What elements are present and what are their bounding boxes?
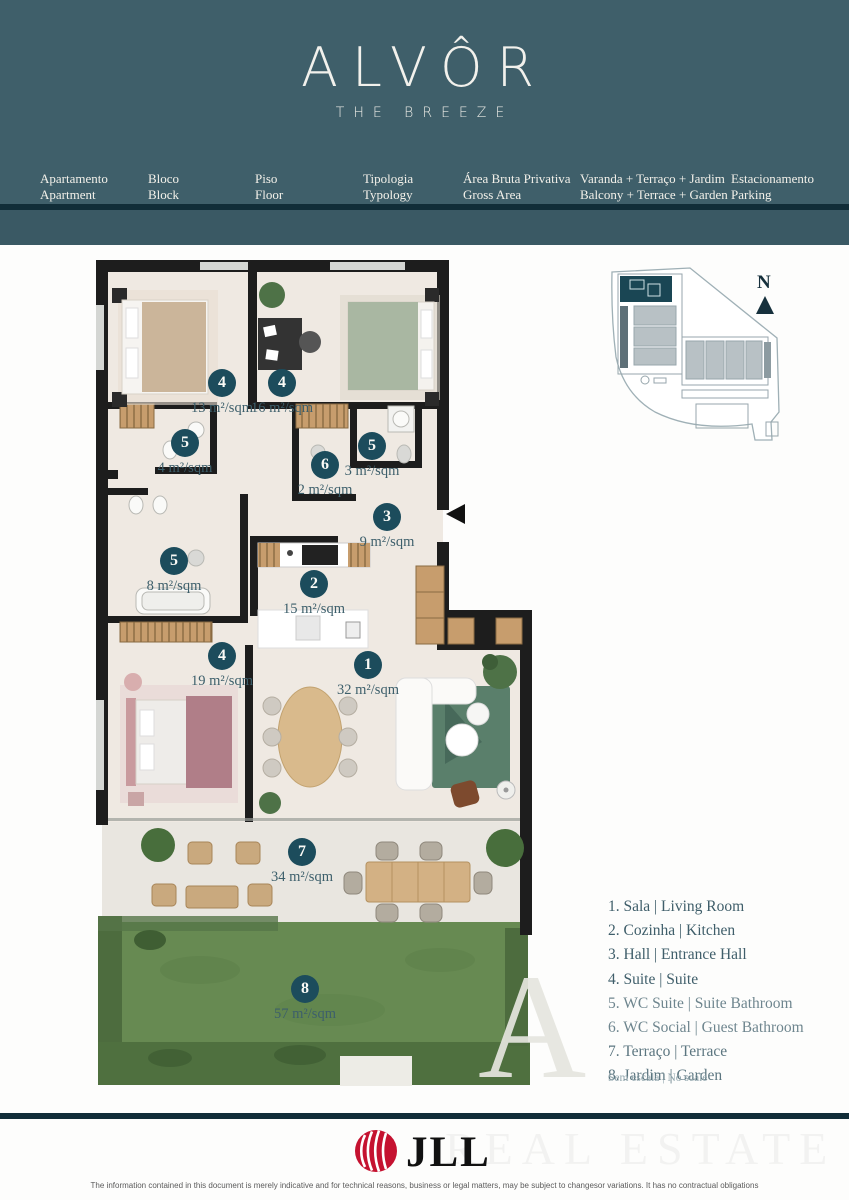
room-badge-wc-suite-a: 5 [171, 429, 199, 457]
header-col-en: Parking [731, 187, 814, 203]
brand-logo: ALVÔR [0, 36, 849, 99]
legend-item-suite: 4. Suite | Suite [608, 971, 804, 989]
room-badge-wc-suite-b: 5 [358, 432, 386, 460]
header-col-typology: Tipologia Typology [363, 171, 413, 203]
header-col-pt: Estacionamento [731, 171, 814, 187]
disclaimer-text: The information contained in this docume… [0, 1181, 849, 1190]
header-col-pt: Tipologia [363, 171, 413, 187]
room-area-wc-suite-a: 4 m²/sqm [135, 460, 235, 477]
room-area-wc-suite-b: 3 m²/sqm [322, 463, 422, 480]
room-badge-living: 1 [354, 651, 382, 679]
legend-item-wc-social: 6. WC Social | Guest Bathroom [608, 1019, 804, 1037]
room-legend: 1. Sala | Living Room 2. Cozinha | Kitch… [608, 898, 804, 1092]
brand-tagline: THE BREEZE [0, 105, 849, 121]
header-values-band [0, 210, 849, 245]
room-badge-suite-b: 4 [268, 369, 296, 397]
room-badge-suite-a: 4 [208, 369, 236, 397]
north-arrow-icon: N [756, 272, 774, 314]
legend-item-terrace: 7. Terraço | Terrace [608, 1043, 804, 1061]
header-col-block: Bloco Block [148, 171, 179, 203]
header-col-pt: Piso [255, 171, 283, 187]
room-area-suite-b: 16 m²/sqm [232, 400, 332, 417]
room-badge-wc-suite-c: 5 [160, 547, 188, 575]
suite-furniture [120, 673, 238, 806]
legend-item-hall: 3. Hall | Entrance Hall [608, 946, 804, 964]
legend-item-living: 1. Sala | Living Room [608, 898, 804, 916]
header-col-en: Typology [363, 187, 413, 203]
room-badge-hall: 3 [373, 503, 401, 531]
room-badge-kitchen: 2 [300, 570, 328, 598]
highlighted-unit [620, 276, 672, 302]
room-area-wc-suite-c: 8 m²/sqm [124, 578, 224, 595]
room-area-garden: 57 m²/sqm [255, 1006, 355, 1023]
header-col-parking: Estacionamento Parking [731, 171, 814, 203]
legend-item-kitchen: 2. Cozinha | Kitchen [608, 922, 804, 940]
header-col-pt: Varanda + Terraço + Jardim [580, 171, 728, 187]
header-col-en: Apartment [40, 187, 108, 203]
header-divider [0, 204, 849, 210]
site-map: N [600, 262, 800, 452]
room-badge-suite-c: 4 [208, 642, 236, 670]
header-col-pt: Área Bruta Privativa [463, 171, 571, 187]
header-col-en: Balcony + Terrace + Garden [580, 187, 728, 203]
header-col-en: Block [148, 187, 179, 203]
scale-note: Sem escala | No scale [608, 1072, 707, 1084]
legend-item-wc-suite: 5. WC Suite | Suite Bathroom [608, 995, 804, 1013]
room-area-hall: 9 m²/sqm [337, 534, 437, 551]
header-col-outdoor: Varanda + Terraço + Jardim Balcony + Ter… [580, 171, 728, 203]
room-area-suite-c: 19 m²/sqm [172, 673, 272, 690]
room-area-kitchen: 15 m²/sqm [264, 601, 364, 618]
jll-logo: JLL [352, 1126, 532, 1176]
jll-logo-text: JLL [406, 1129, 491, 1176]
room-badge-garden: 8 [291, 975, 319, 1003]
header-col-en: Gross Area [463, 187, 571, 203]
room-badge-terrace: 7 [288, 838, 316, 866]
compass-label: N [757, 272, 771, 293]
footer-divider-bar [0, 1113, 849, 1119]
watermark-letter: A [478, 952, 586, 1102]
header-col-en: Floor [255, 187, 283, 203]
room-area-terrace: 34 m²/sqm [252, 869, 352, 886]
bedroom-left-furniture [112, 288, 218, 407]
header-col-floor: Piso Floor [255, 171, 283, 203]
header-col-gross-area: Área Bruta Privativa Gross Area [463, 171, 571, 203]
floorplan-page: ALVÔR THE BREEZE Apartamento Apartment B… [0, 0, 849, 1200]
header-col-pt: Bloco [148, 171, 179, 187]
room-area-wc-social: 2 m²/sqm [275, 482, 375, 499]
header-col-pt: Apartamento [40, 171, 108, 187]
header-col-apartment: Apartamento Apartment [40, 171, 108, 203]
room-area-living: 32 m²/sqm [318, 682, 418, 699]
